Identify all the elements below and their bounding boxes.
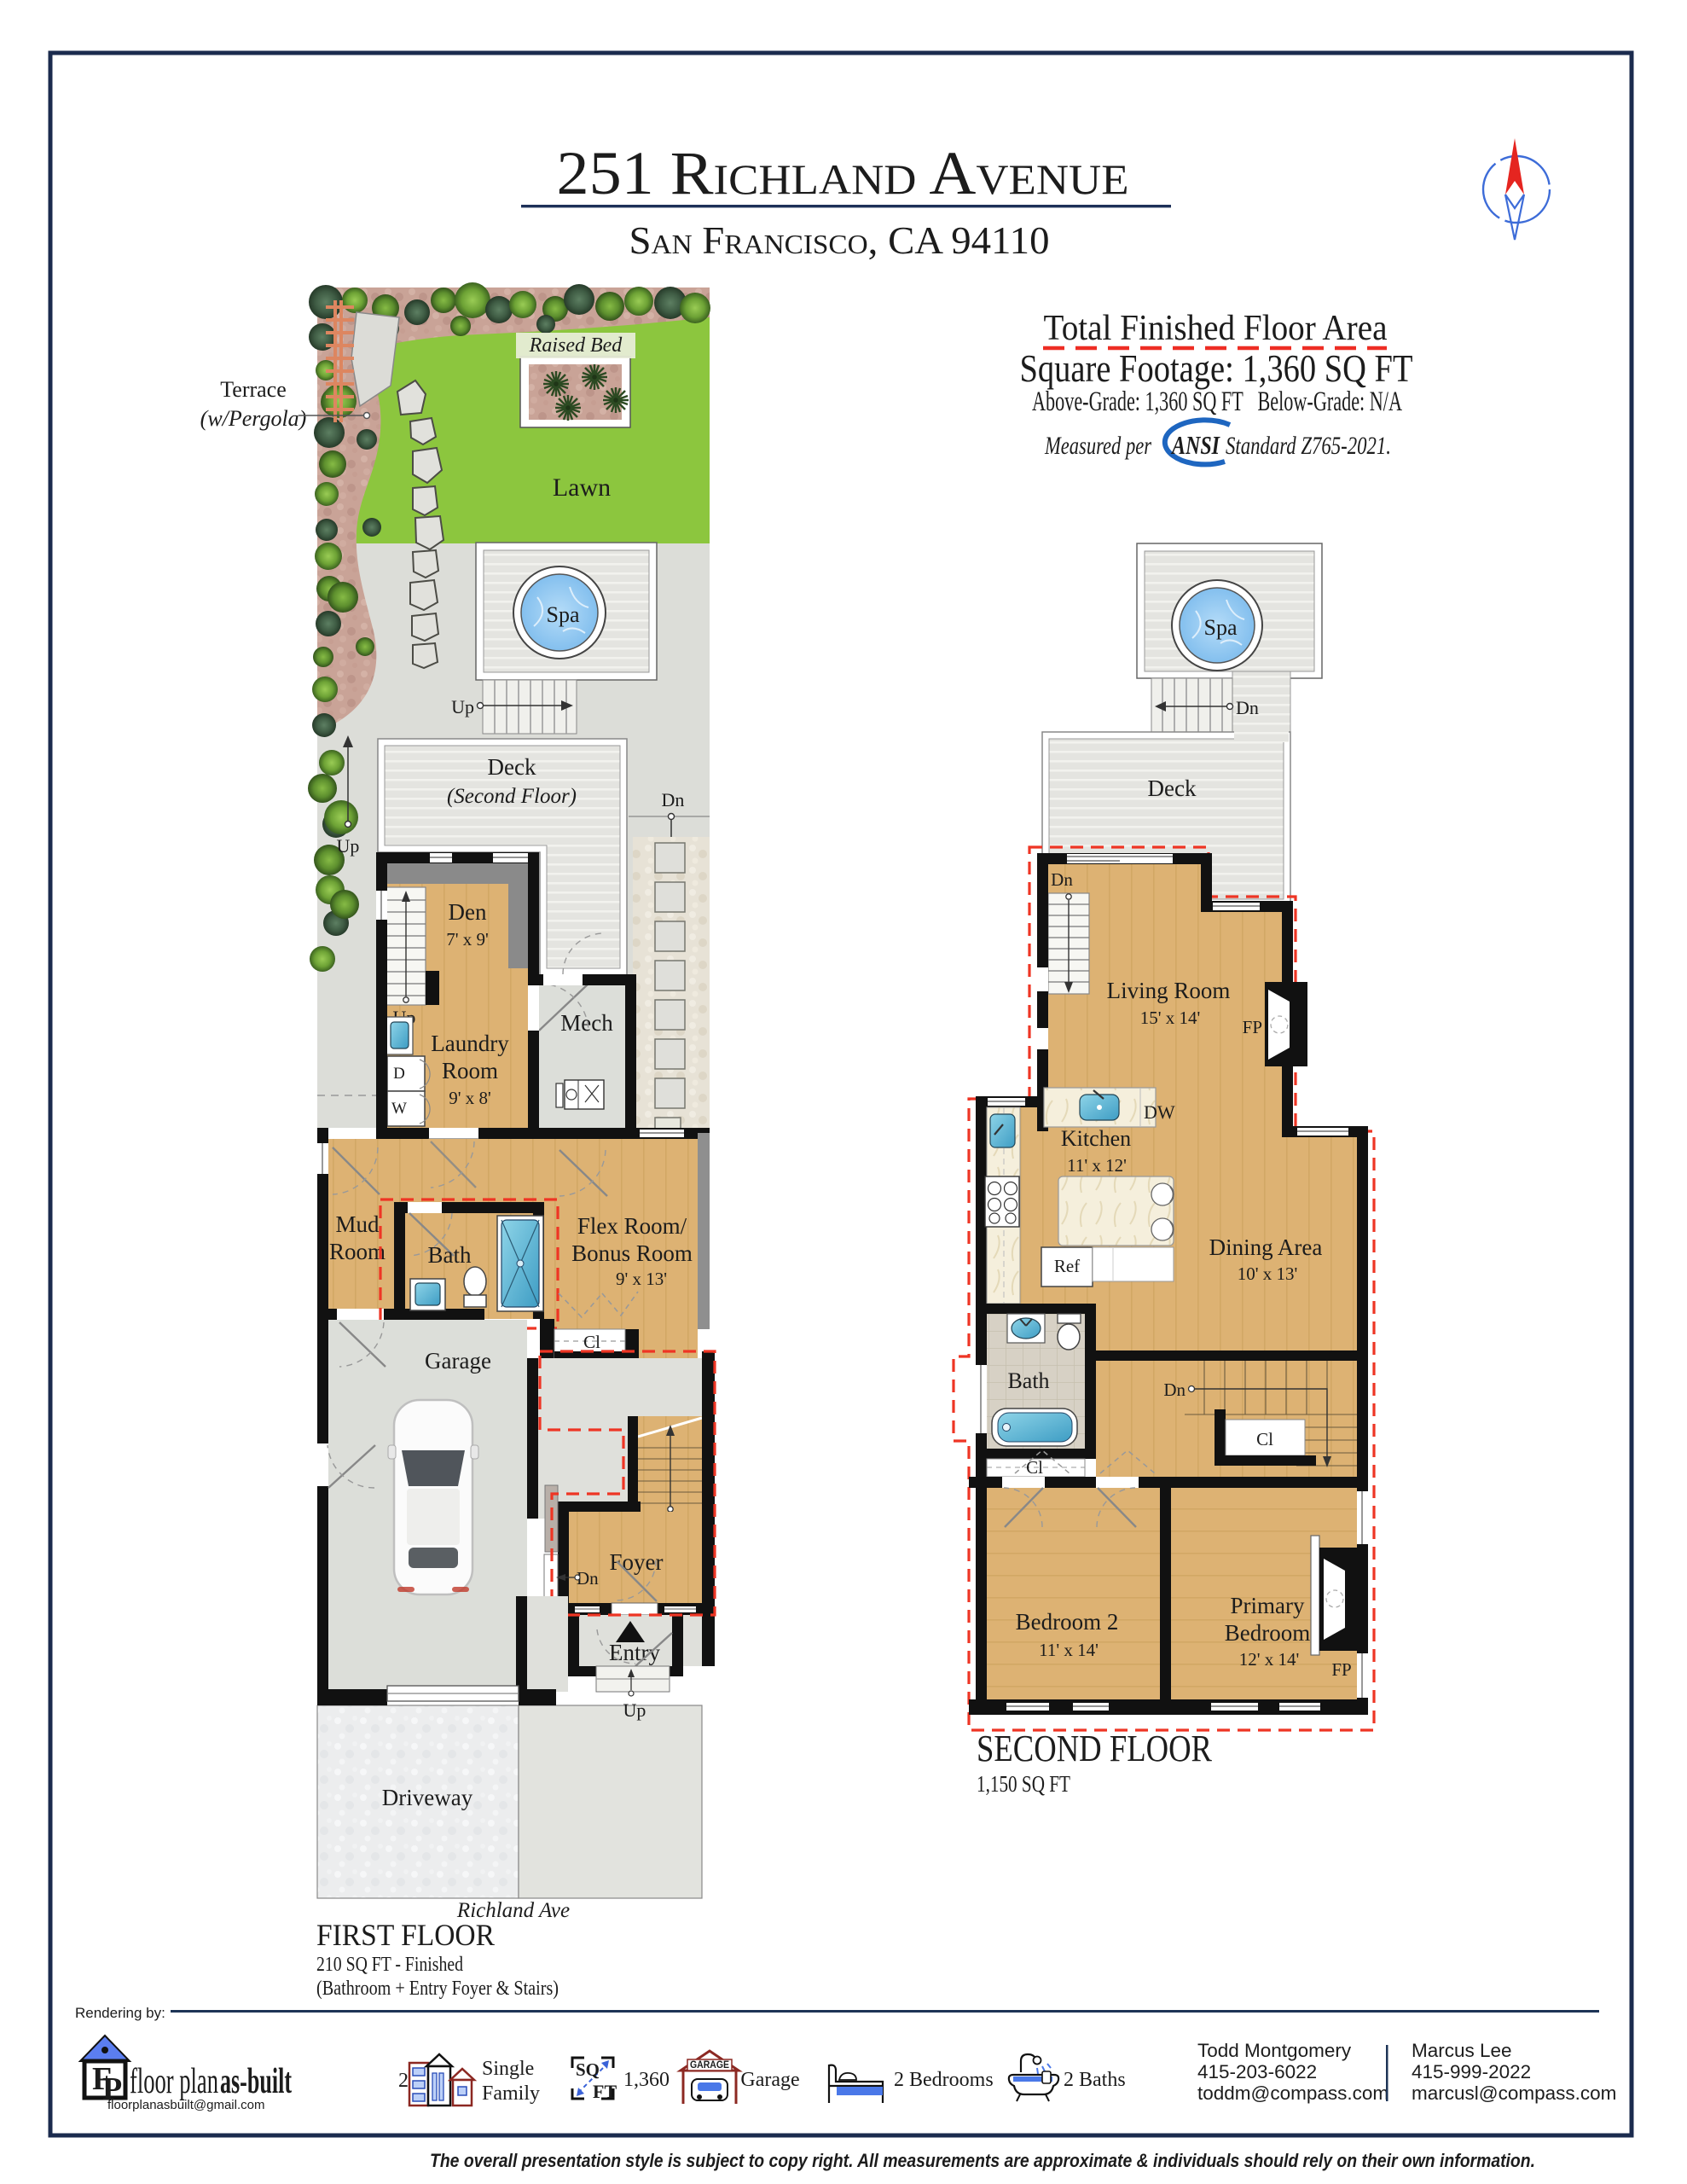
svg-text:(w/Pergola): (w/Pergola) xyxy=(200,406,307,431)
svg-text:Bath: Bath xyxy=(1007,1368,1049,1393)
svg-text:Deck: Deck xyxy=(1148,775,1197,801)
svg-text:floorplanasbuilt@gmail.com: floorplanasbuilt@gmail.com xyxy=(107,2098,264,2112)
svg-text:Den: Den xyxy=(449,899,487,925)
svg-text:Raised Bed: Raised Bed xyxy=(529,334,623,357)
svg-text:floor plan: floor plan xyxy=(130,2062,218,2101)
svg-text:Spa: Spa xyxy=(1204,615,1238,640)
svg-text:Ref: Ref xyxy=(1054,1256,1080,1276)
svg-text:Room: Room xyxy=(329,1239,386,1264)
svg-text:Flex Room/: Flex Room/ xyxy=(577,1213,687,1239)
svg-text:11' x 12': 11' x 12' xyxy=(1067,1155,1127,1176)
svg-text:Cl: Cl xyxy=(1256,1429,1273,1449)
svg-text:1,360: 1,360 xyxy=(623,2069,670,2091)
svg-text:Lawn: Lawn xyxy=(553,473,611,502)
svg-text:SECOND FLOOR: SECOND FLOOR xyxy=(977,1728,1213,1769)
svg-text:12' x 14': 12' x 14' xyxy=(1239,1649,1300,1670)
svg-text:Primary: Primary xyxy=(1231,1593,1305,1618)
svg-text:Kitchen: Kitchen xyxy=(1061,1126,1131,1151)
svg-text:Marcus Lee: Marcus Lee xyxy=(1412,2040,1512,2061)
svg-text:marcusl@compass.com: marcusl@compass.com xyxy=(1412,2082,1616,2104)
svg-text:Bedroom: Bedroom xyxy=(1225,1620,1311,1646)
svg-text:Dining Area: Dining Area xyxy=(1209,1234,1323,1260)
svg-text:FIRST FLOOR: FIRST FLOOR xyxy=(316,1918,495,1952)
svg-text:Dn: Dn xyxy=(1236,697,1259,718)
svg-text:Room: Room xyxy=(442,1058,498,1083)
svg-text:210 SQ FT - Finished: 210 SQ FT - Finished xyxy=(316,1954,463,1976)
svg-text:Garage: Garage xyxy=(425,1348,491,1374)
svg-text:415-203-6022: 415-203-6022 xyxy=(1197,2061,1317,2082)
svg-text:251 Richland Avenue: 251 Richland Avenue xyxy=(557,139,1129,207)
svg-text:2 Baths: 2 Baths xyxy=(1064,2069,1126,2091)
svg-text:FT: FT xyxy=(593,2081,617,2102)
svg-text:7' x 9': 7' x 9' xyxy=(446,929,489,950)
svg-text:415-999-2022: 415-999-2022 xyxy=(1412,2061,1531,2082)
svg-text:toddm@compass.com: toddm@compass.com xyxy=(1197,2082,1388,2104)
svg-text:ANSI: ANSI xyxy=(1170,430,1220,460)
svg-text:Measured per: Measured per xyxy=(1044,432,1151,460)
svg-text:11' x 14': 11' x 14' xyxy=(1039,1640,1099,1660)
svg-text:Bath: Bath xyxy=(428,1242,472,1268)
svg-text:Spa: Spa xyxy=(547,602,580,627)
svg-text:9' x 13': 9' x 13' xyxy=(616,1269,667,1289)
svg-text:The overall presentation style: The overall presentation style is subjec… xyxy=(430,2150,1535,2171)
svg-text:(Second Floor): (Second Floor) xyxy=(447,785,577,808)
svg-text:FP: FP xyxy=(1331,1659,1351,1680)
svg-text:10' x 13': 10' x 13' xyxy=(1238,1263,1298,1284)
svg-text:Deck: Deck xyxy=(488,754,536,780)
svg-text:GARAGE: GARAGE xyxy=(690,2059,729,2071)
svg-text:(Bathroom + Entry Foyer & Stai: (Bathroom + Entry Foyer & Stairs) xyxy=(316,1978,559,2000)
svg-text:1,150 SQ FT: 1,150 SQ FT xyxy=(977,1771,1070,1797)
svg-text:FP: FP xyxy=(1243,1017,1262,1037)
svg-text:Standard Z765-2021.: Standard Z765-2021. xyxy=(1226,432,1391,460)
svg-text:Laundry: Laundry xyxy=(431,1031,509,1056)
svg-text:Garage: Garage xyxy=(740,2069,799,2091)
svg-text:Above-Grade: 1,360 SQ FT Bel: Above-Grade: 1,360 SQ FT Below-Grade: N/… xyxy=(1032,386,1402,417)
svg-text:D: D xyxy=(393,1065,405,1083)
svg-text:Todd Montgomery: Todd Montgomery xyxy=(1197,2040,1352,2061)
svg-text:Bedroom 2: Bedroom 2 xyxy=(1016,1609,1119,1635)
svg-text:SQ: SQ xyxy=(576,2059,600,2080)
svg-text:Terrace: Terrace xyxy=(220,377,287,402)
svg-text:Dn: Dn xyxy=(1163,1380,1186,1400)
svg-text:Cl: Cl xyxy=(583,1332,600,1352)
svg-text:Total Finished Floor Area: Total Finished Floor Area xyxy=(1044,309,1388,348)
svg-text:Living Room: Living Room xyxy=(1107,978,1231,1003)
svg-text:Mech: Mech xyxy=(560,1010,613,1036)
svg-text:Family: Family xyxy=(482,2082,540,2105)
svg-text:San Francisco, CA 94110: San Francisco, CA 94110 xyxy=(629,219,1050,262)
svg-text:Rendering by:: Rendering by: xyxy=(75,2005,165,2021)
svg-text:Entry: Entry xyxy=(609,1640,660,1665)
svg-text:Single: Single xyxy=(482,2058,534,2080)
svg-text:2: 2 xyxy=(398,2070,409,2092)
svg-text:Driveway: Driveway xyxy=(382,1785,473,1810)
svg-text:Dn: Dn xyxy=(1051,869,1073,890)
svg-text:Bonus Room: Bonus Room xyxy=(571,1240,693,1266)
svg-text:9' x 8': 9' x 8' xyxy=(449,1088,491,1108)
svg-text:Mud: Mud xyxy=(335,1211,380,1237)
svg-text:Up: Up xyxy=(623,1699,646,1721)
svg-text:Cl: Cl xyxy=(1026,1457,1043,1478)
svg-text:Up: Up xyxy=(337,835,360,857)
svg-text:W: W xyxy=(391,1100,407,1118)
svg-text:Square Footage: 1,360 SQ FT: Square Footage: 1,360 SQ FT xyxy=(1020,346,1413,390)
svg-text:2 Bedrooms: 2 Bedrooms xyxy=(894,2069,994,2091)
svg-text:Dn: Dn xyxy=(662,789,685,810)
svg-text:DW: DW xyxy=(1144,1101,1175,1123)
svg-text:15' x 14': 15' x 14' xyxy=(1140,1008,1201,1028)
svg-text:Up: Up xyxy=(451,696,474,717)
svg-text:as-built: as-built xyxy=(220,2062,292,2101)
